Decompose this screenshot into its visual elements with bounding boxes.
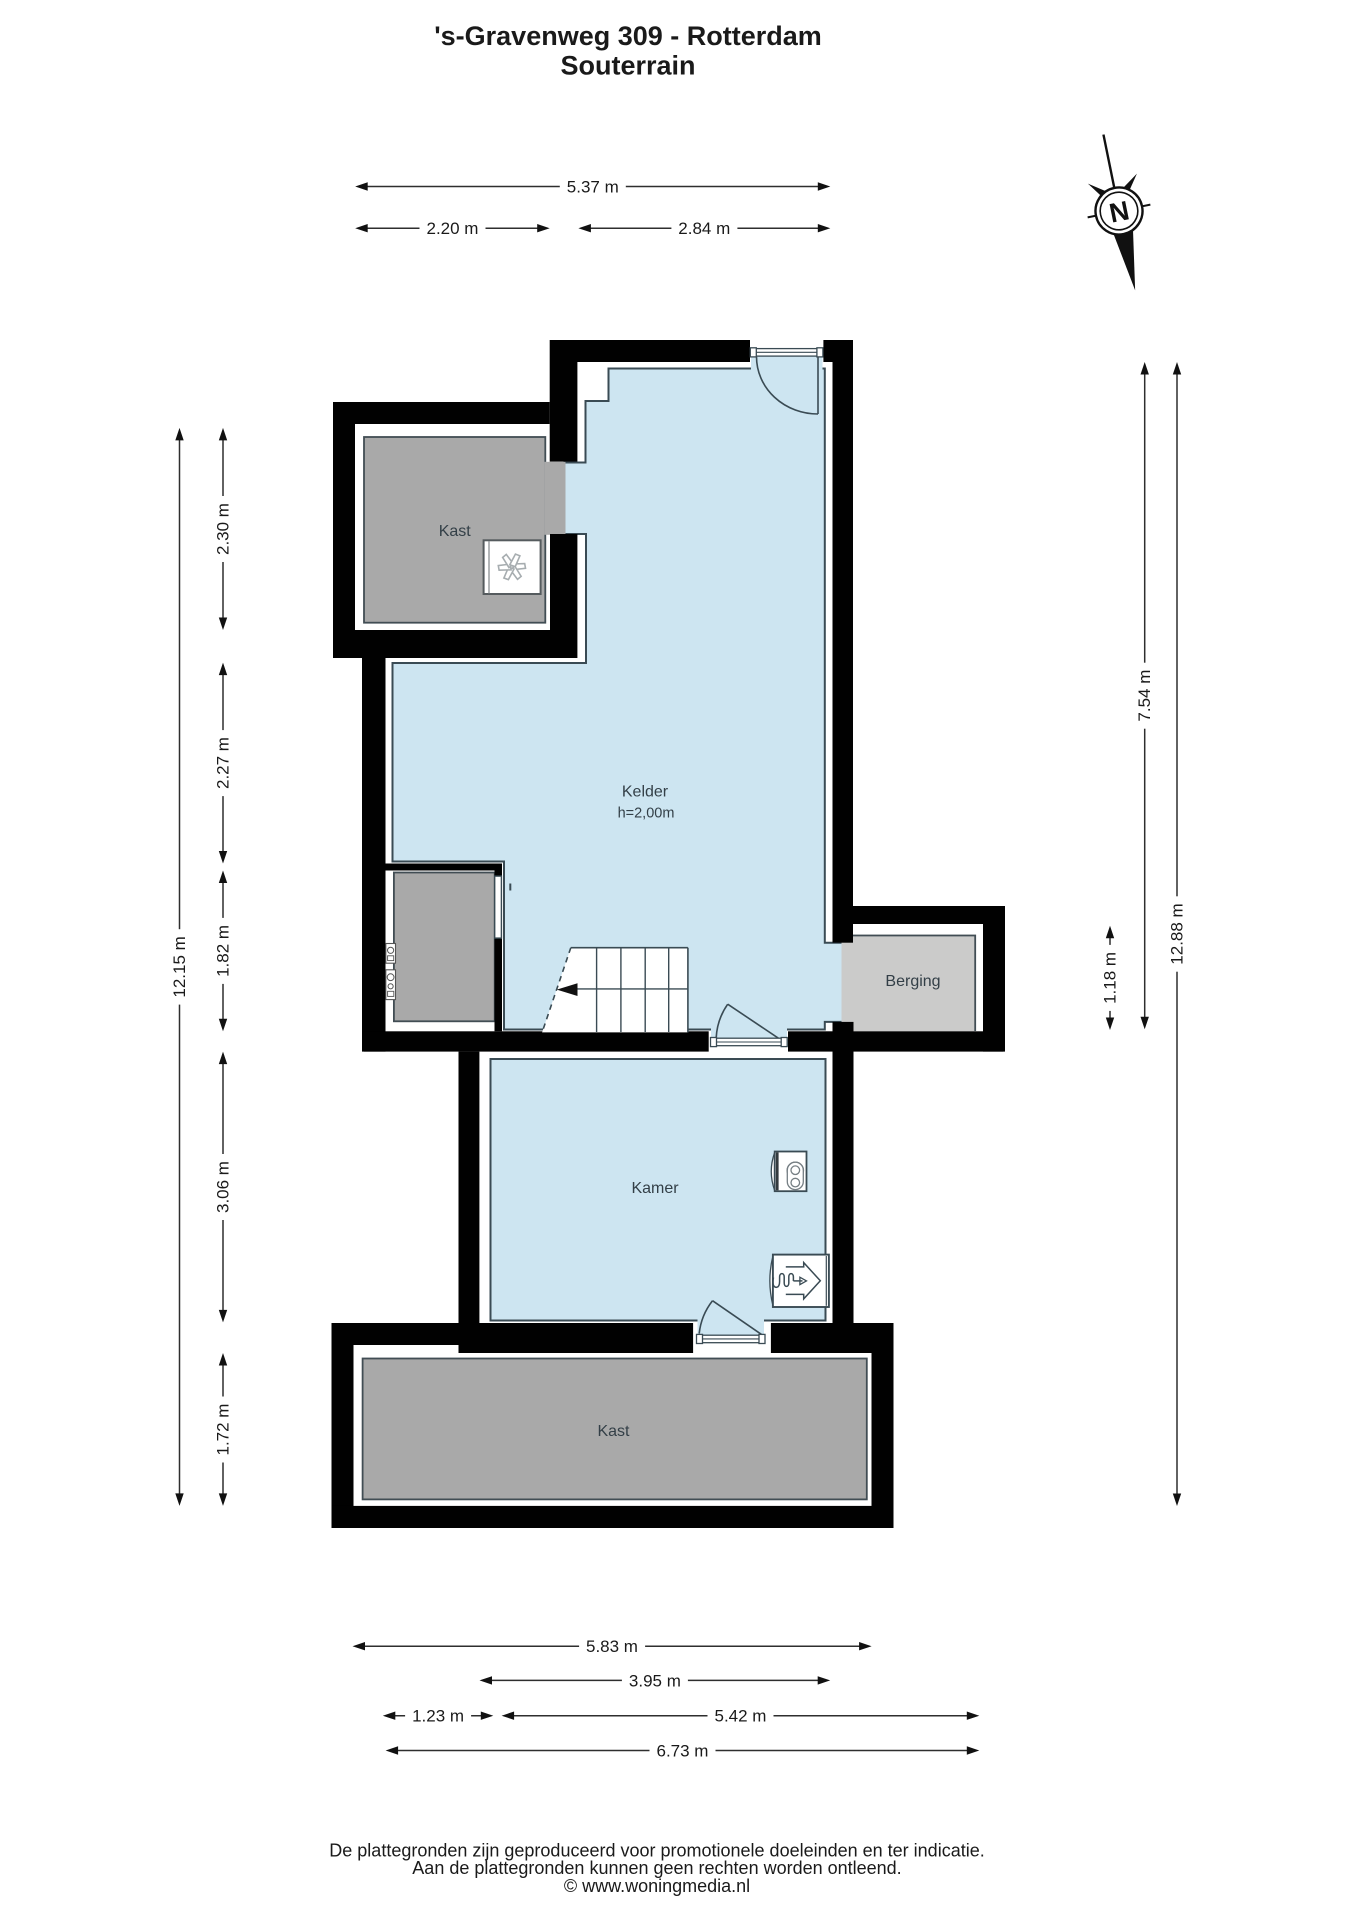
svg-text:Kast: Kast: [439, 523, 472, 540]
svg-text:1.82 m: 1.82 m: [214, 925, 233, 977]
svg-text:Souterrain: Souterrain: [560, 51, 695, 81]
svg-text:12.88 m: 12.88 m: [1168, 903, 1187, 964]
svg-text:1.18 m: 1.18 m: [1101, 952, 1120, 1004]
svg-text:2.27 m: 2.27 m: [214, 737, 233, 789]
svg-text:2.20 m: 2.20 m: [427, 219, 479, 238]
svg-text:1.23 m: 1.23 m: [412, 1707, 464, 1726]
svg-text:7.54 m: 7.54 m: [1135, 670, 1154, 722]
svg-text:12.15 m: 12.15 m: [170, 936, 189, 997]
svg-text:h=2,00m: h=2,00m: [618, 806, 675, 822]
svg-text:© www.woningmedia.nl: © www.woningmedia.nl: [564, 1876, 750, 1896]
svg-text:6.73 m: 6.73 m: [657, 1742, 709, 1761]
svg-text:Kamer: Kamer: [631, 1180, 679, 1197]
svg-text:2.84 m: 2.84 m: [678, 219, 730, 238]
svg-text:3.95 m: 3.95 m: [629, 1671, 681, 1690]
svg-text:5.83 m: 5.83 m: [586, 1637, 638, 1656]
svg-text:2.30 m: 2.30 m: [214, 503, 233, 555]
svg-text:1.72 m: 1.72 m: [214, 1404, 233, 1456]
svg-text:5.42 m: 5.42 m: [715, 1707, 767, 1726]
svg-text:Berging: Berging: [885, 973, 940, 990]
svg-text:Kelder: Kelder: [622, 784, 669, 801]
svg-text:Kast: Kast: [597, 1423, 630, 1440]
svg-text:'s-Gravenweg 309 - Rotterdam: 's-Gravenweg 309 - Rotterdam: [434, 21, 822, 51]
svg-text:5.37 m: 5.37 m: [567, 178, 619, 197]
svg-text:3.06 m: 3.06 m: [214, 1161, 233, 1213]
